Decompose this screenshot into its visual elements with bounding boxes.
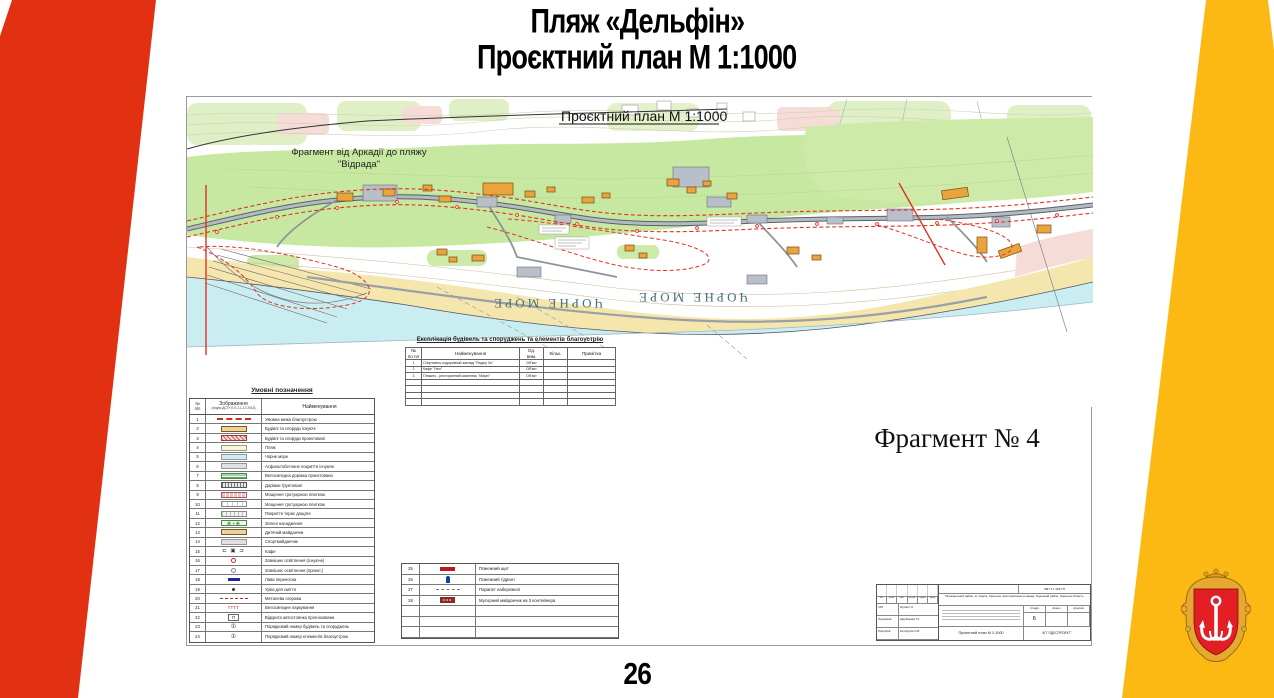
legend-row: 24①Порядковий номер елементів благоустро… — [190, 632, 374, 641]
fragment-caption: Фрагмент № 4 — [827, 423, 1087, 454]
rect-plank-icon — [221, 511, 247, 517]
map-fragment-note-line1: Фрагмент від Аркадії до пляжу — [291, 147, 427, 158]
explication-header-row: №по пл Найменування Од.вим. Кільк. Примі… — [406, 348, 616, 360]
num-circle-icon: ① — [221, 634, 247, 640]
rect-gray-icon — [221, 463, 247, 469]
stamp-address: Приморський район, м. Одеса, Одеська тер… — [939, 594, 1090, 606]
hydrant-icon — [446, 576, 450, 583]
legend-row: 4Пляж — [190, 443, 374, 452]
legend-row: 18Лава переносна — [190, 575, 374, 584]
legend-row: 10Мощення тротуарною плиткою — [190, 500, 374, 509]
stamp-roles: ГАПМурзін І.Л.ПеревіривЩербакова Т.К.Роз… — [877, 604, 938, 640]
coat-of-arms-icon — [1176, 566, 1256, 672]
parking-icon: П — [228, 614, 239, 621]
stamp-sheets-label: Аркушів — [1068, 606, 1090, 612]
urn-icon — [232, 588, 235, 591]
stamp-stage-label: Стадія — [1024, 606, 1046, 612]
sea-label-2: ЧОРНЕ МОРЕ — [636, 290, 748, 305]
fence-red-icon — [220, 598, 248, 599]
circle-gray-icon — [231, 568, 236, 573]
stamp-column-headers: Зм.Кільк.Арк.№ док.ПідписДата — [877, 597, 938, 604]
green-dots-icon: ❀ ▪ ❀ — [221, 520, 247, 526]
legend-row — [402, 617, 618, 628]
legend-row: 15⊏ ▣ ⊐Кафе — [190, 547, 374, 556]
explication-title: Експлікація будівель та споруджень та ел… — [405, 337, 615, 347]
map-fragment-note-line2: "Відрада" — [338, 159, 380, 170]
stamp-stage-block: Стадія Аркуш Аркушів Б — [1024, 606, 1090, 626]
legend-row: 1Умовна межа благоустрою — [190, 415, 374, 424]
legend-row: 28оооМусорний майданчик на 3 контейнера — [402, 596, 618, 607]
slide-title: Пляж «Дельфін» Проєктний план М 1:1000 — [200, 2, 1074, 74]
legend-row: 16Зовнішнє освітлення (існуюче) — [190, 557, 374, 566]
odessa-coat-of-arms — [1176, 566, 1256, 672]
legend-row: 11Покриття терас дощате — [190, 509, 374, 518]
legend-row: 26Пожежний гідрант — [402, 575, 618, 586]
legend2-panel: 25Пожежний щит26Пожежний гідрант27Парапе… — [401, 563, 619, 639]
legend-row: 6Асфальтобетонне покриття існуюче — [190, 462, 374, 471]
circle-red-icon — [231, 558, 236, 563]
explication-table: №по пл Найменування Од.вим. Кільк. Примі… — [405, 347, 616, 406]
explication-empty-row — [406, 399, 616, 406]
stamp-sheet-label: Аркуш — [1046, 606, 1068, 612]
rect-paleyellow-icon — [221, 445, 247, 451]
stamp-doc-code: ЗМТ 17-103-ГП — [1018, 585, 1090, 593]
legend-row: 22ПВідкрита автостоянка прогнозована — [190, 613, 374, 622]
legend-row: 27Парапет набережної — [402, 585, 618, 596]
slide-title-line2: Проєктний план М 1:1000 — [477, 38, 796, 76]
bench-icon — [228, 578, 240, 581]
legend-rows: 1Умовна межа благоустрою2Будівлі та спор… — [190, 415, 374, 642]
fire-shield-icon — [440, 567, 455, 571]
parapet-icon — [436, 589, 460, 590]
legend-row: 25Пожежний щит — [402, 564, 618, 575]
legend-row: 20Металева огорожа — [190, 594, 374, 603]
stamp-description — [939, 606, 1024, 626]
stamp-role-row: ПеревіривЩербакова Т.К. — [877, 616, 938, 628]
sea-label-1: ЧОРНЕ МОРЕ — [491, 296, 603, 311]
legend-row: 3Будівлі та споруди проектовані — [190, 434, 374, 443]
legend-row: 8Доріжки ґрунтовані — [190, 481, 374, 490]
stamp-stage-value: Б — [1024, 613, 1046, 626]
rect-pinktile-icon — [221, 492, 247, 498]
legend-row: 2Будівлі та споруди існуючі — [190, 424, 374, 433]
legend-row: 13Дитячий майданчик — [190, 528, 374, 537]
rect-tan-icon — [221, 529, 247, 535]
legend-title: Умовні позначення — [189, 387, 375, 398]
legend-header: № п/п Зображення (згідно ДСТУ Б Б.1.1-17… — [190, 399, 374, 415]
cafe-glyphs-icon: ⊏ ▣ ⊐ — [219, 548, 249, 554]
legend-col-name: Найменування — [262, 399, 374, 414]
legend-row: 19Урна для сміття — [190, 585, 374, 594]
waste-icon: ооо — [440, 597, 455, 603]
stamp-organization: КП "ОДЕСПРОЕКТ" — [1024, 627, 1090, 640]
site-plan-map: Проєктний план М 1:1000 Фрагмент від Арк… — [187, 97, 1093, 407]
rect-tile-icon — [221, 501, 247, 507]
rect-blue-icon — [221, 454, 247, 460]
legend-row: 14Спортмайданчик — [190, 538, 374, 547]
page-number: 26 — [0, 656, 1274, 692]
legend-row: 12❀ ▪ ❀Зелені насадження — [190, 519, 374, 528]
legend-row — [402, 627, 618, 638]
legend-panel: Умовні позначення № п/п Зображення (згід… — [189, 387, 375, 643]
explication-rows: 1Спортивно-оздоровчий заклад "Яндер Хо"О… — [406, 360, 616, 406]
legend-row — [402, 606, 618, 617]
stamp-role-row: РозробивКолобухов О.В. — [877, 628, 938, 640]
rect-redhatch-icon — [221, 435, 247, 441]
legend-row: 21ттттВелосипедне паркування — [190, 604, 374, 613]
rect-gray-icon — [221, 539, 247, 545]
stamp-doc-row: ЗМТ 17-103-ГП — [939, 585, 1090, 594]
slide-title-line1: Пляж «Дельфін» — [530, 2, 744, 40]
stamp-grid — [877, 585, 938, 597]
line-red-icon — [217, 418, 251, 420]
legend-row: 17Зовнішнє освітлення (проект.) — [190, 566, 374, 575]
legend-row: 5Чорне море — [190, 453, 374, 462]
rect-darkhatch-icon — [221, 482, 247, 488]
num-circle-icon: ① — [221, 624, 247, 630]
legend-row: 23①Порядковий номер будівель та спорудже… — [190, 623, 374, 632]
rect-tan-icon — [221, 426, 247, 432]
stamp-role-row: ГАПМурзін І.Л. — [877, 604, 938, 616]
map-plan-header: Проєктний план М 1:1000 — [561, 108, 727, 124]
title-block: Зм.Кільк.Арк.№ док.ПідписДата ГАПМурзін … — [876, 584, 1091, 641]
bike-red-icon: тттт — [221, 605, 247, 611]
legend-row: 7Велосипедна доріжка проектована — [190, 472, 374, 481]
legend-row: 9Мощення тротуарною плиткою — [190, 491, 374, 500]
drawing-sheet: Проєктний план М 1:1000 Фрагмент від Арк… — [186, 96, 1092, 646]
rect-greenstripe-icon — [221, 473, 247, 479]
stamp-sheet-title: Проєктний план М 1:1000 — [939, 627, 1024, 640]
explication-panel: Експлікація будівель та споруджень та ел… — [405, 337, 615, 406]
